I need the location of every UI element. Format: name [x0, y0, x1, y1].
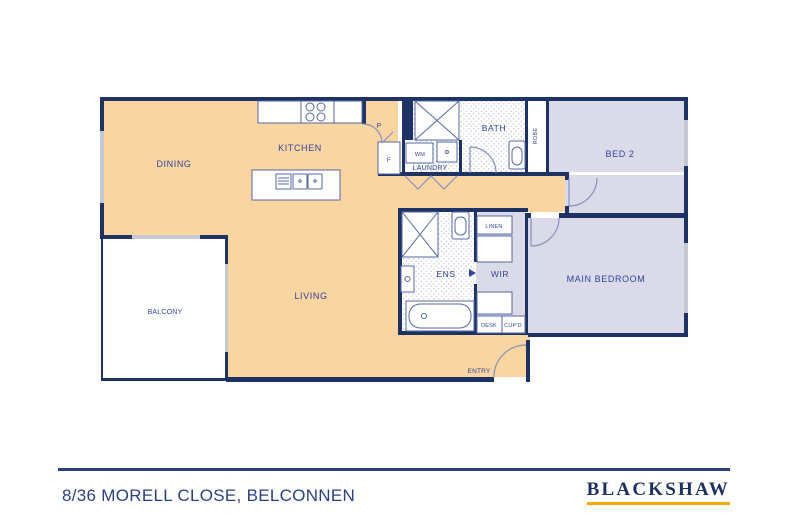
- stove-icon: [306, 103, 314, 111]
- wall-segment: [526, 340, 530, 382]
- wall-segment: [225, 238, 228, 264]
- label-entry: ENTRY: [468, 368, 491, 375]
- label-main-bedroom: MAIN BEDROOM: [567, 274, 646, 284]
- wall-segment: [100, 99, 104, 131]
- floor-plan: DINING KITCHEN LIVING BALCONY P F WM LAU…: [0, 0, 790, 460]
- label-robe: ROBE: [533, 128, 539, 145]
- wall-segment: [402, 99, 413, 140]
- label-bath: BATH: [482, 123, 506, 133]
- brand-logo-container: BLACKSHAW: [58, 479, 730, 505]
- wall-segment: [226, 377, 494, 382]
- wall-segment: [100, 203, 104, 239]
- wall-segment: [200, 235, 228, 239]
- wall-segment: [225, 352, 228, 379]
- wall-segment: [378, 172, 568, 176]
- label-laundry: LAUNDRY: [413, 165, 448, 172]
- label-cupd: CUP'D: [504, 323, 522, 329]
- window-bed2: [684, 120, 688, 166]
- wall-segment: [546, 99, 549, 175]
- wall-segment: [525, 213, 531, 218]
- wall-segment: [103, 235, 132, 239]
- sink-basin-icon: [293, 174, 307, 189]
- label-dining: DINING: [156, 159, 191, 169]
- label-pantry: P: [377, 123, 382, 130]
- label-desk: DESK: [481, 323, 497, 329]
- room-living-floor: [228, 235, 398, 377]
- wall-segment: [402, 140, 405, 174]
- sliding-door-living: [225, 264, 228, 352]
- label-wir: WIR: [491, 269, 509, 279]
- window-main-bedroom: [684, 243, 688, 313]
- sliding-door-balcony: [132, 235, 200, 239]
- label-bed2: BED 2: [605, 149, 634, 159]
- stove-icon: [306, 113, 314, 121]
- room-bed2-floor-lower: [565, 175, 684, 213]
- page: DINING KITCHEN LIVING BALCONY P F WM LAU…: [0, 0, 790, 527]
- blackshaw-logo: BLACKSHAW: [587, 479, 730, 505]
- balcony-rail: [101, 378, 227, 381]
- label-linen: LINEN: [485, 224, 502, 230]
- wall-segment: [459, 140, 462, 174]
- label-washing-machine: WM: [415, 152, 425, 158]
- stove-icon: [317, 103, 325, 111]
- window-dining: [100, 131, 104, 203]
- label-living: LIVING: [294, 291, 327, 301]
- bathtub-icon: [406, 301, 474, 331]
- room-bed2-floor: [549, 101, 684, 172]
- balcony-rail: [101, 239, 103, 379]
- vanity-sink-icon: [401, 266, 414, 292]
- label-fridge: F: [387, 157, 391, 164]
- entry-floor: [398, 335, 530, 377]
- wall-segment: [559, 213, 688, 218]
- wall-segment: [398, 208, 528, 212]
- wall-segment: [362, 99, 366, 124]
- sink-basin-icon: [308, 174, 322, 189]
- wir-shelf: [477, 236, 512, 262]
- laundry-tub: [437, 142, 457, 162]
- wir-shelf: [477, 292, 512, 314]
- hallway-floor: [398, 175, 567, 212]
- wall-segment: [528, 333, 688, 337]
- stove-icon: [317, 113, 325, 121]
- wall-segment: [100, 97, 688, 101]
- footer-divider: [58, 468, 730, 471]
- label-balcony: BALCONY: [148, 309, 183, 316]
- label-ens: ENS: [436, 269, 455, 279]
- label-kitchen: KITCHEN: [278, 143, 322, 153]
